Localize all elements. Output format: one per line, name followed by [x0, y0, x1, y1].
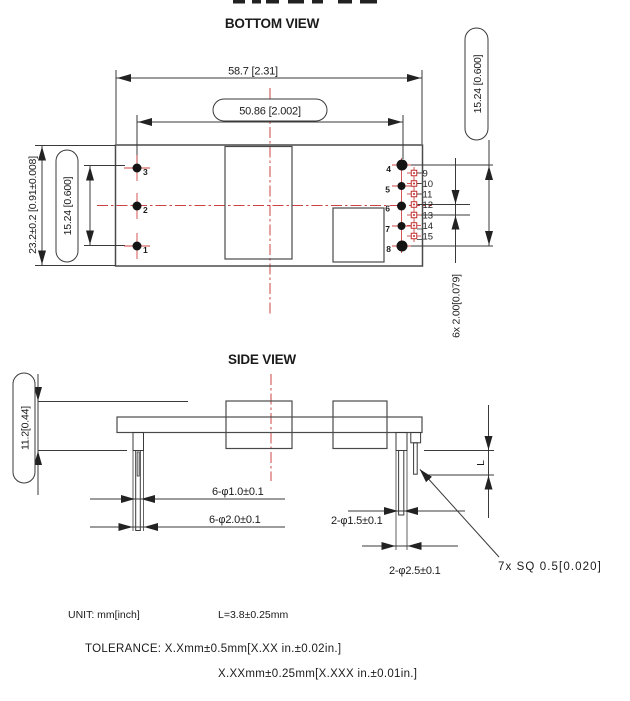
- technical-drawing: BOTTOM VIEW 58.7 [2.31]: [0, 0, 630, 701]
- dim-module-height: 11.2[0.44]: [13, 373, 188, 495]
- tolerance-line-1: TOLERANCE: X.Xmm±0.5mm[X.XX in.±0.02in.]: [85, 643, 341, 655]
- pin-1-label: 1: [143, 245, 148, 255]
- cropped-text-fragment: [233, 0, 377, 4]
- dim-pin-span-left-label: 15.24 [0.600]: [62, 176, 74, 235]
- dim-pin2-tip-diameter-label: 2-φ1.5±0.1: [331, 515, 383, 527]
- pin-3-pad: [133, 164, 142, 173]
- pin-8-pad: [397, 241, 408, 252]
- side-square-pin: [411, 433, 421, 475]
- dim-pin2-base-diameter-label: 2-φ2.5±0.1: [389, 565, 441, 577]
- dim-pin-span-left: 15.24 [0.600]: [56, 150, 125, 262]
- pin-9-label: 9: [423, 169, 428, 180]
- center-component-outline: [225, 147, 292, 260]
- dim-pin-base-diameter-label: 6-φ2.0±0.1: [209, 514, 261, 526]
- side-right-round-pin: [396, 433, 407, 551]
- leader-square-pin: 7x SQ 0.5[0.020]: [420, 470, 602, 574]
- pin-1-pad: [133, 242, 142, 251]
- dim-pin-tip-diameter-label: 6-φ1.0±0.1: [212, 486, 264, 498]
- dim-pin-span-width-label: 50.86 [2.002]: [239, 106, 301, 118]
- pin-14-label: 14: [423, 221, 434, 232]
- dim-pin-span-right-label: 15.24 [0.600]: [472, 54, 484, 113]
- pin-6-label: 6: [385, 204, 390, 214]
- dim-pin-base-diameter: 6-φ2.0±0.1: [90, 514, 285, 527]
- pin-6-pad: [397, 202, 406, 211]
- pin-5-pad: [398, 182, 406, 190]
- dim-outer-height-label: 23.2±0.2 [0.91±0.008]: [27, 156, 39, 254]
- unit-note: UNIT: mm[inch]: [68, 609, 140, 621]
- side-left-pin: [133, 433, 144, 532]
- drawing-canvas: BOTTOM VIEW 58.7 [2.31]: [0, 0, 630, 701]
- pin-2-label: 2: [143, 205, 148, 215]
- side-view-title: SIDE VIEW: [228, 352, 296, 367]
- dim-pin2-tip-diameter: 2-φ1.5±0.1: [331, 511, 465, 527]
- pin-13-label: 13: [423, 211, 434, 222]
- pin-3-label: 3: [143, 167, 148, 177]
- side-pcb-board: [117, 417, 422, 433]
- pin-15-label: 15: [423, 232, 434, 243]
- notes: UNIT: mm[inch] L=3.8±0.25mm TOLERANCE: X…: [68, 609, 417, 680]
- bottom-view-title: BOTTOM VIEW: [225, 16, 320, 31]
- dim-pin-length-L: L: [424, 405, 494, 518]
- dim-pin-tip-diameter: 6-φ1.0±0.1: [90, 486, 285, 499]
- side-right-component: [333, 401, 387, 449]
- right-pins: 4 5 6 7 8: [385, 160, 411, 255]
- pin-2-pad: [133, 202, 142, 211]
- pin-4-label: 4: [386, 164, 391, 174]
- l-value-note: L=3.8±0.25mm: [218, 609, 289, 621]
- pin-11-label: 11: [423, 190, 433, 201]
- pin-8-label: 8: [386, 244, 391, 254]
- dim-pin2-base-diameter: 2-φ2.5±0.1: [362, 546, 458, 577]
- pin-7-pad: [398, 222, 406, 230]
- side-left-component: [226, 401, 292, 449]
- tolerance-line-2: X.XXmm±0.25mm[X.XXX in.±0.01in.]: [218, 668, 417, 680]
- dim-module-height-label: 11.2[0.44]: [20, 406, 32, 450]
- dim-outer-width-label: 58.7 [2.31]: [228, 66, 278, 78]
- right-component-outline: [333, 208, 384, 262]
- pin-7-label: 7: [385, 224, 390, 234]
- bottom-view: BOTTOM VIEW 58.7 [2.31]: [27, 16, 493, 338]
- dim-pin-pitch-label: 6x 2.00[0.079]: [451, 274, 463, 338]
- left-pins: 3 2 1: [124, 155, 150, 259]
- leader-square-pin-label: 7x SQ 0.5[0.020]: [498, 561, 602, 573]
- pin-5-label: 5: [385, 185, 390, 195]
- pin-10-label: 10: [423, 179, 434, 190]
- pin-12-label: 12: [423, 200, 434, 211]
- dim-pin-length-label: L: [475, 460, 487, 466]
- side-view: SIDE VIEW: [13, 352, 602, 577]
- io-pins: 9 10 11 12 13 14 15: [407, 169, 433, 243]
- pin-4-pad: [397, 160, 408, 171]
